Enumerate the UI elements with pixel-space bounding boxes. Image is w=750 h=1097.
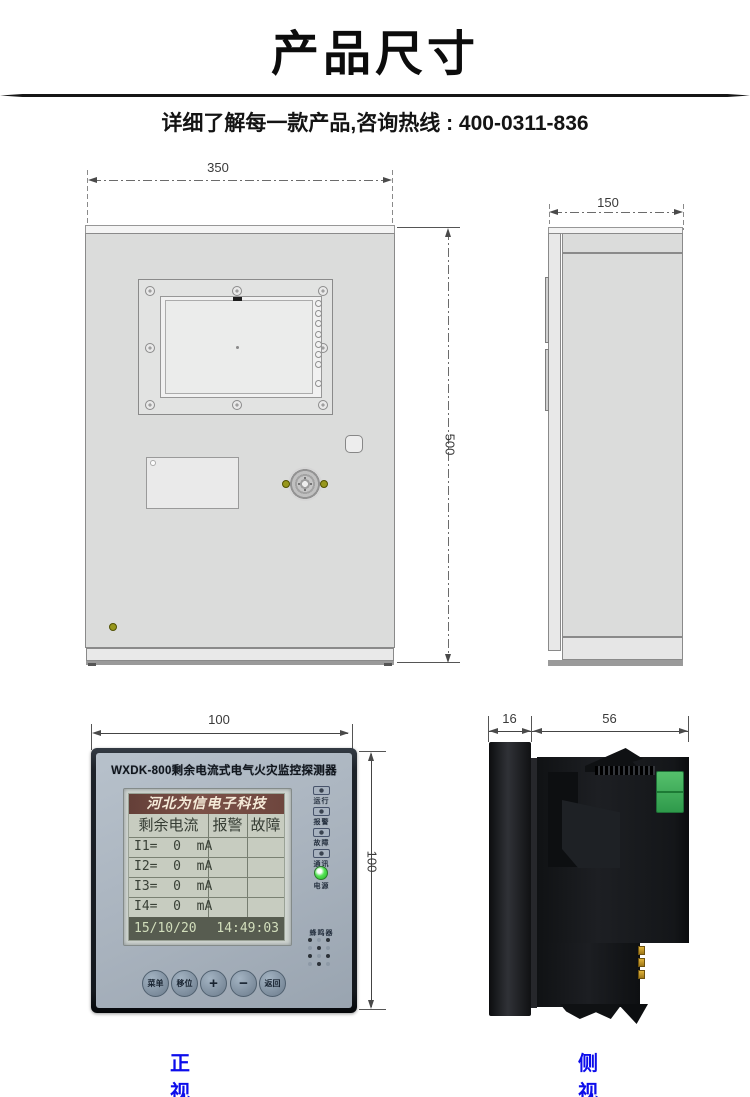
device-height-dim-label: 100: [365, 847, 380, 877]
lcd-status-bar: 15/10/20 14:49:03: [129, 917, 284, 940]
lock-led: [282, 480, 290, 488]
dim-arrow-down-icon: [445, 654, 451, 663]
buzzer-hole: [326, 962, 330, 966]
run-led-label: 运行: [303, 796, 340, 806]
lcd-col-header-fault: 故障: [247, 815, 284, 837]
buzzer-hole: [317, 954, 321, 958]
buzzer-hole: [326, 946, 330, 950]
cabinet-width-dim-label: 350: [185, 160, 251, 175]
device-width-dim-label: 100: [190, 712, 248, 727]
panel-button-hole: [315, 361, 322, 368]
display-screen: [165, 300, 313, 394]
dim-arrow-up-icon: [445, 228, 451, 237]
minus-button: −: [230, 970, 257, 997]
lcd-row-i1: I1= 0 mA: [134, 837, 212, 857]
side-front-bezel: [489, 742, 531, 1016]
buzzer-hole: [308, 946, 312, 950]
key-cover: [345, 435, 363, 453]
hotline-subtitle: 详细了解每一款产品,咨询热线 : 400-0311-836: [0, 107, 750, 137]
return-button: 返回: [259, 970, 286, 997]
lcd-screen: 河北为信电子科技 剩余电流 报警 故障 I1= 0 mA I2= 0 mA I3…: [128, 793, 285, 941]
extension-line: [91, 724, 92, 750]
hinge: [545, 277, 549, 343]
dim-arrow-left-icon: [88, 177, 97, 183]
buzzer-hole: [317, 938, 321, 942]
cabinet-width-dim-line: [92, 180, 389, 181]
dim-arrow-right-icon: [679, 728, 688, 734]
panel-button-hole: [315, 300, 322, 307]
cabinet-height-dim-label: 500: [443, 425, 458, 465]
buzzer-hole: [326, 954, 330, 958]
panel-button-hole: [315, 341, 322, 348]
panel-button-hole: [315, 331, 322, 338]
cabinet-base-strip: [86, 661, 394, 665]
panel-button-hole: [315, 380, 322, 387]
side-base-strip: [548, 660, 683, 666]
buzzer-hole: [308, 954, 312, 958]
power-led-dot: [109, 623, 117, 631]
contact-pin: [638, 958, 645, 967]
page-title: 产品尺寸: [0, 14, 750, 84]
front-view-caption: 正视图: [170, 1047, 193, 1097]
buzzer-label: 蜂鸣器: [303, 928, 340, 938]
dim-arrow-right-icon: [674, 209, 683, 215]
bottom-clip-tooth: [618, 1004, 648, 1024]
side-body: [562, 253, 683, 637]
product-dimensions-page: 产品尺寸 详细了解每一款产品,咨询热线 : 400-0311-836 350: [0, 0, 750, 1097]
dim-arrow-left-icon: [489, 728, 498, 734]
comm-led: [313, 849, 330, 858]
screen-center-dot: [236, 346, 239, 349]
dim-arrow-left-icon: [533, 728, 542, 734]
bezel-depth-dim-label: 16: [488, 711, 531, 726]
panel-button-hole: [315, 351, 322, 358]
contact-pin: [638, 970, 645, 979]
screw-marker: [145, 343, 155, 353]
buzzer-hole: [317, 962, 321, 966]
header-divider: [0, 94, 750, 97]
side-bottom-band: [562, 637, 683, 660]
screw-marker: [318, 286, 328, 296]
fault-led: [313, 828, 330, 837]
extension-line: [683, 204, 684, 230]
power-led-label: 电源: [303, 881, 340, 891]
device-height-dim-line: [371, 754, 372, 1007]
alarm-led: [313, 807, 330, 816]
lock-knob: [288, 467, 322, 501]
device-model-title: WXDK-800剩余电流式电气火灾监控探测器: [100, 762, 348, 778]
dim-arrow-left-icon: [549, 209, 558, 215]
screw-marker: [145, 400, 155, 410]
lcd-date: 15/10/20: [134, 917, 197, 940]
cabinet-foot: [88, 663, 96, 666]
side-body-lower: [537, 943, 640, 1007]
lcd-col-header-current: 剩余电流: [129, 815, 208, 837]
screen-top-mark: [233, 297, 242, 301]
buzzer-hole: [317, 946, 321, 950]
lock-dot: [298, 483, 300, 485]
extension-line: [392, 170, 393, 228]
buzzer-hole: [308, 938, 312, 942]
label-window-hole: [150, 460, 156, 466]
cabinet-foot: [384, 663, 392, 666]
shift-button: 移位: [171, 970, 198, 997]
buzzer-hole: [326, 938, 330, 942]
dim-arrow-right-icon: [340, 730, 349, 736]
extension-line: [87, 170, 88, 228]
dim-arrow-right-icon: [383, 177, 392, 183]
menu-button: 菜单: [142, 970, 169, 997]
terminal-block: [656, 771, 684, 813]
lcd-row-i3: I3= 0 mA: [134, 877, 212, 897]
screw-marker: [318, 400, 328, 410]
hinge: [545, 349, 549, 411]
lcd-brand-banner: 河北为信电子科技: [129, 794, 284, 814]
dim-arrow-up-icon: [368, 752, 374, 761]
cabinet-depth-dim-label: 150: [585, 195, 631, 210]
alarm-led-label: 报警: [303, 817, 340, 827]
extension-line: [352, 724, 353, 750]
body-dim-line: [532, 731, 688, 732]
lcd-time: 14:49:03: [216, 917, 279, 940]
run-led: [313, 786, 330, 795]
cabinet-depth-dim-line: [553, 212, 679, 213]
cabinet-bottom-band: [86, 648, 394, 661]
lock-led: [320, 480, 328, 488]
side-door-strip: [548, 233, 561, 651]
panel-button-hole: [315, 320, 322, 327]
dim-arrow-right-icon: [522, 728, 531, 734]
power-led: [314, 866, 328, 880]
fault-led-label: 故障: [303, 838, 340, 848]
terminal-divider: [657, 791, 683, 793]
screw-marker: [145, 286, 155, 296]
lock-dot: [310, 483, 312, 485]
lock-dot: [304, 489, 306, 491]
lcd-row-i4: I4= 0 mA: [134, 897, 212, 917]
extension-line: [359, 1009, 386, 1010]
panel-button-hole: [315, 310, 322, 317]
extension-line: [549, 204, 550, 224]
buzzer-hole: [308, 962, 312, 966]
device-width-dim-line: [95, 733, 348, 734]
bottom-clip: [560, 1004, 622, 1019]
side-view-caption: 侧视图: [578, 1047, 601, 1097]
label-window: [146, 457, 239, 509]
screw-marker: [232, 286, 242, 296]
body-depth-dim-label: 56: [531, 711, 688, 726]
contact-pin: [638, 946, 645, 955]
plus-button: +: [200, 970, 227, 997]
heatsink-serration: [595, 766, 655, 775]
dim-arrow-down-icon: [368, 1000, 374, 1009]
lcd-col-header-alarm: 报警: [208, 815, 247, 837]
extension-line: [688, 716, 689, 742]
lcd-row-i2: I2= 0 mA: [134, 857, 212, 877]
screw-marker: [232, 400, 242, 410]
side-top-band: [562, 233, 683, 253]
dim-arrow-left-icon: [92, 730, 101, 736]
extension-line: [531, 716, 532, 742]
lock-dot: [304, 477, 306, 479]
